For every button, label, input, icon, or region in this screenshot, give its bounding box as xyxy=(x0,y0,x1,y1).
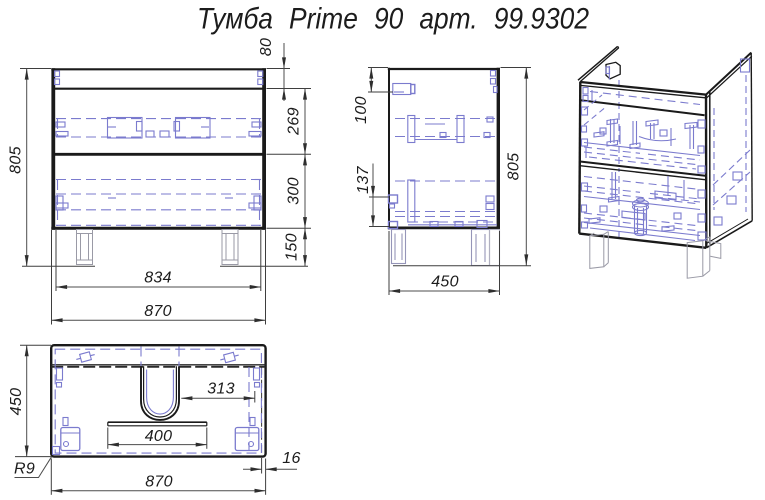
svg-text:269: 269 xyxy=(286,107,303,136)
svg-text:16: 16 xyxy=(282,450,300,467)
svg-text:805: 805 xyxy=(506,153,523,181)
svg-text:100: 100 xyxy=(353,96,370,124)
svg-text:137: 137 xyxy=(355,165,372,193)
svg-text:805: 805 xyxy=(8,146,25,174)
svg-text:834: 834 xyxy=(144,270,172,287)
svg-text:R9: R9 xyxy=(14,461,35,478)
svg-text:80: 80 xyxy=(258,38,275,56)
svg-text:150: 150 xyxy=(284,233,301,261)
svg-text:Тумба Prime 90 арт. 99.9302: Тумба Prime 90 арт. 99.9302 xyxy=(197,3,589,36)
svg-text:300: 300 xyxy=(286,177,303,205)
svg-text:870: 870 xyxy=(145,474,173,491)
svg-text:450: 450 xyxy=(431,274,459,291)
svg-text:313: 313 xyxy=(207,381,235,398)
svg-text:870: 870 xyxy=(144,303,172,320)
svg-text:450: 450 xyxy=(8,388,25,416)
svg-text:400: 400 xyxy=(145,428,173,445)
